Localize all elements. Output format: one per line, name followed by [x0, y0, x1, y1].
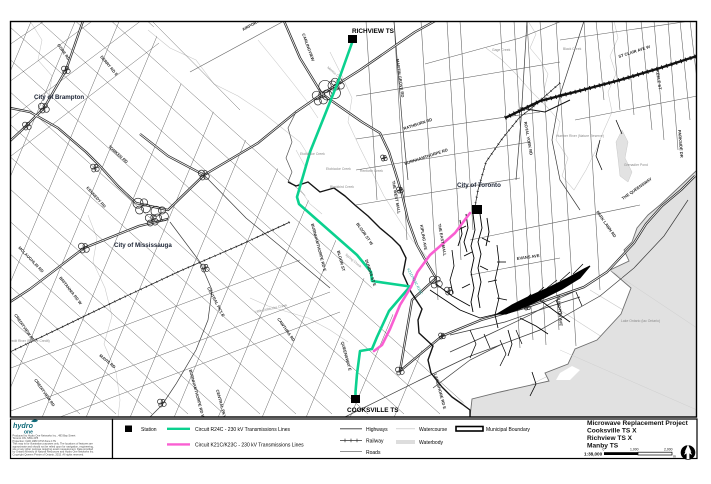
svg-text:Black Creek: Black Creek	[563, 47, 582, 51]
svg-text:BLOOR ST: BLOOR ST	[336, 250, 346, 272]
svg-text:CARLINGVIEW: CARLINGVIEW	[301, 33, 316, 62]
svg-text:1:38,000: 1:38,000	[584, 452, 603, 457]
svg-text:2,000: 2,000	[664, 448, 673, 452]
svg-text:1,000: 1,000	[630, 448, 639, 452]
svg-text:0: 0	[603, 448, 605, 452]
svg-text:BURNHAMTHORPE RD: BURNHAMTHORPE RD	[404, 147, 449, 166]
svg-text:KENNEDY RD: KENNEDY RD	[85, 185, 107, 208]
svg-text:Roads: Roads	[366, 450, 381, 456]
svg-text:Blackbird Creek: Blackbird Creek	[330, 185, 354, 189]
svg-text:COOKSVILLE TS: COOKSVILLE TS	[347, 407, 399, 414]
svg-text:Cooksville TS X: Cooksville TS X	[587, 428, 637, 435]
svg-text:BRITANNIA RD W: BRITANNIA RD W	[58, 276, 83, 306]
svg-text:m: m	[673, 455, 676, 459]
svg-text:KIPLING AVE: KIPLING AVE	[419, 224, 428, 250]
svg-text:Waterbody: Waterbody	[419, 440, 443, 446]
svg-text:Richview TS X: Richview TS X	[587, 435, 633, 442]
svg-text:PARK LAWN RD: PARK LAWN RD	[595, 210, 617, 239]
svg-text:Etobicoke Creek: Etobicoke Creek	[300, 152, 325, 156]
svg-text:Copyright Queens Printer of On: Copyright Queens Printer of Ontario, 201…	[13, 452, 85, 456]
svg-text:Municipal Boundary: Municipal Boundary	[486, 427, 530, 433]
svg-text:Highways: Highways	[366, 427, 388, 433]
svg-text:BLOOR ST W: BLOOR ST W	[355, 222, 374, 246]
svg-text:RICHVIEW TS: RICHVIEW TS	[352, 28, 395, 35]
svg-text:CENTRAL PKY W: CENTRAL PKY W	[215, 389, 229, 423]
svg-text:Humber River (Nature Reserve): Humber River (Nature Reserve)	[556, 134, 604, 138]
svg-text:Lake Ontario (lac Ontario): Lake Ontario (lac Ontario)	[621, 319, 660, 323]
svg-text:TOMKEN RD: TOMKEN RD	[107, 144, 129, 164]
svg-text:BURNHAMTHORPE RD W: BURNHAMTHORPE RD W	[188, 369, 206, 419]
svg-text:Microwave Replacement Project: Microwave Replacement Project	[587, 420, 689, 427]
svg-text:Spring Creek: Spring Creek	[344, 253, 362, 269]
svg-text:MAVIS RD: MAVIS RD	[98, 353, 116, 370]
svg-text:GORE RD: GORE RD	[56, 43, 71, 62]
svg-text:ST CLAIR AVE W: ST CLAIR AVE W	[618, 44, 651, 59]
svg-text:City of Mississauga: City of Mississauga	[114, 242, 172, 249]
svg-text:MARTIN GROVE RD: MARTIN GROVE RD	[395, 58, 405, 97]
svg-text:Circuit K21C/K23C - 230 kV Tra: Circuit K21C/K23C - 230 kV Transmissions…	[195, 443, 304, 449]
svg-text:Circuit R24C - 230 kV Transmis: Circuit R24C - 230 kV Transmissions Line…	[195, 427, 291, 433]
svg-text:RATHBURN RD: RATHBURN RD	[403, 117, 433, 131]
svg-text:PARKSIDE DR: PARKSIDE DR	[677, 130, 684, 158]
svg-text:QUEENSWAY E: QUEENSWAY E	[340, 341, 353, 372]
svg-text:KEELE ST: KEELE ST	[655, 69, 663, 90]
svg-text:MCLAUGHLIN RD: MCLAUGHLIN RD	[17, 245, 45, 273]
svg-text:Railway: Railway	[366, 439, 384, 445]
svg-text:ROYAL YORK RD: ROYAL YORK RD	[523, 121, 534, 155]
svg-text:ISLINGTON AVE: ISLINGTON AVE	[556, 295, 564, 327]
svg-text:Grenadier Pond: Grenadier Pond	[624, 163, 648, 167]
svg-text:BURNHAMTHORPE RD E: BURNHAMTHORPE RD E	[310, 223, 328, 272]
svg-text:Gage Creek: Gage Creek	[492, 48, 511, 52]
svg-text:Little Etobicoke Creek: Little Etobicoke Creek	[254, 303, 287, 314]
svg-text:CREDITVIEW RD: CREDITVIEW RD	[13, 313, 36, 343]
svg-text:Credit River (Riviere Credit): Credit River (Riviere Credit)	[8, 339, 50, 343]
svg-text:Renforth Creek: Renforth Creek	[360, 169, 383, 173]
svg-text:AIRPORT RD: AIRPORT RD	[241, 15, 266, 31]
svg-text:Etobicoke Creek: Etobicoke Creek	[326, 167, 351, 171]
svg-text:City of Brampton: City of Brampton	[34, 94, 84, 101]
svg-text:Station: Station	[141, 427, 157, 433]
svg-text:Watercourse: Watercourse	[419, 427, 447, 433]
svg-text:City of Toronto: City of Toronto	[457, 182, 501, 189]
